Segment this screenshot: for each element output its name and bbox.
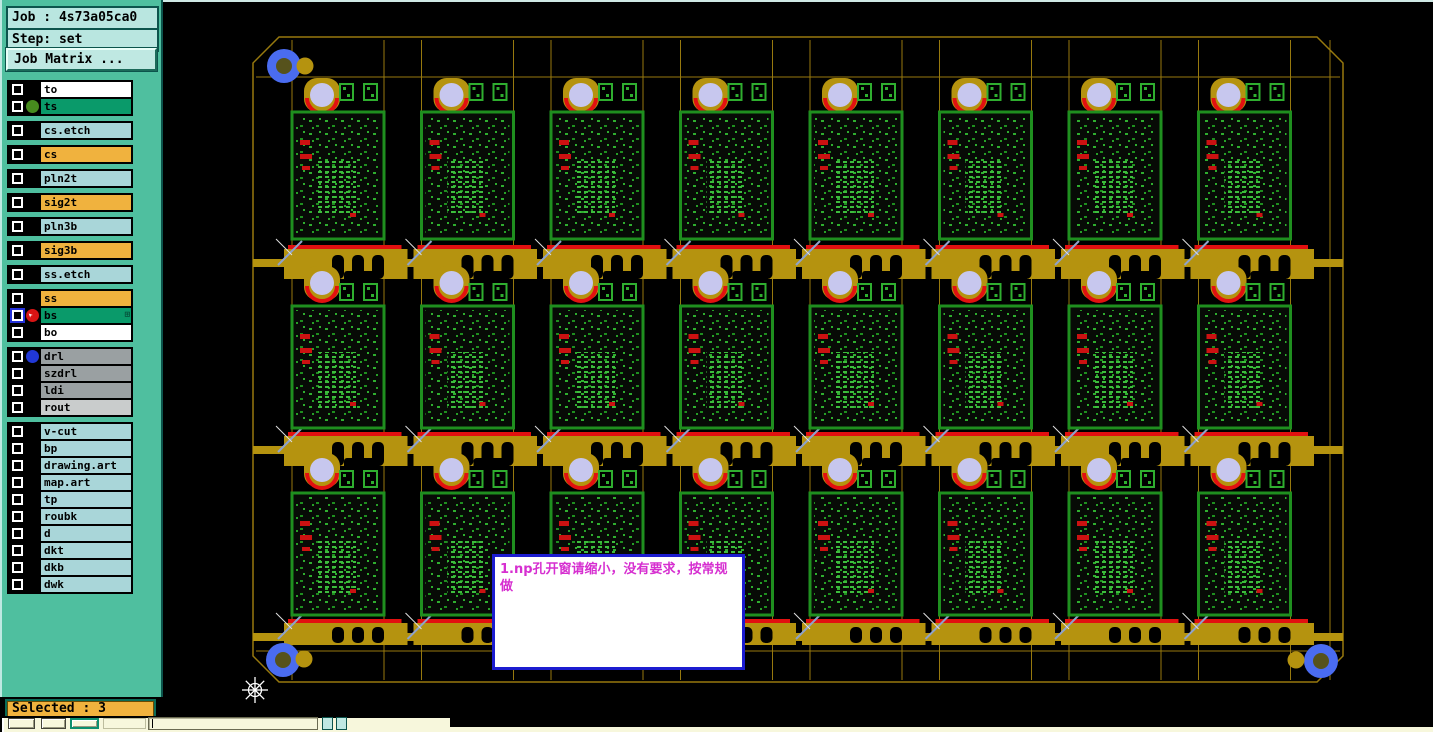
no-icon xyxy=(26,459,39,472)
pcb-board xyxy=(292,306,384,428)
layer-name: ldi xyxy=(41,383,131,398)
no-icon xyxy=(26,527,39,540)
layer-visibility-checkbox[interactable] xyxy=(12,402,23,413)
layer-name: to xyxy=(41,82,131,97)
layer-row-rout[interactable]: rout xyxy=(9,398,131,415)
layer-row-cs[interactable]: cs xyxy=(9,147,131,162)
layer-visibility-checkbox[interactable] xyxy=(12,197,23,208)
toolbar-strip xyxy=(450,727,1433,732)
pcb-board xyxy=(810,493,902,615)
toolbar-button-1[interactable] xyxy=(8,718,35,729)
sidebar: Job : 4s73a05ca0 Step: set Job Matrix ..… xyxy=(0,0,163,697)
cursor-crosshair-icon xyxy=(242,677,268,703)
layer-row-dwk[interactable]: dwk xyxy=(9,575,131,592)
tooling-hole xyxy=(304,78,340,113)
toolbar-button-2[interactable] xyxy=(41,718,66,729)
layer-group: ssbs⊞bo xyxy=(7,289,133,342)
component-footprint xyxy=(858,284,871,300)
no-icon xyxy=(26,244,39,257)
layer-group: cs xyxy=(7,145,133,164)
component-footprint xyxy=(494,84,507,100)
layer-row-to[interactable]: to xyxy=(9,82,131,97)
step-label: Step: set xyxy=(8,28,157,50)
layer-visibility-checkbox[interactable] xyxy=(12,460,23,471)
layer-group: v-cutbpdrawing.artmap.arttproubkddktdkbd… xyxy=(7,422,133,594)
no-icon xyxy=(26,544,39,557)
component-footprint xyxy=(340,471,353,487)
layer-group: ss.etch xyxy=(7,265,133,284)
command-input[interactable] xyxy=(148,717,318,730)
layer-name: pln2t xyxy=(41,171,131,186)
blue-dot-icon xyxy=(26,350,39,363)
pcb-board xyxy=(551,112,643,239)
job-info-box: Job : 4s73a05ca0 Step: set xyxy=(6,6,159,52)
pcb-board xyxy=(940,493,1032,615)
component-footprint xyxy=(1247,471,1260,487)
no-icon xyxy=(26,292,39,305)
no-icon xyxy=(26,578,39,591)
toolbar-mini-button-1[interactable] xyxy=(322,717,333,730)
tooling-hole xyxy=(1211,78,1247,113)
layer-group: pln2t xyxy=(7,169,133,188)
component-footprint xyxy=(1271,284,1284,300)
pcb-board xyxy=(810,306,902,428)
layer-row-szdrl[interactable]: szdrl xyxy=(9,364,131,381)
layer-name: ss xyxy=(41,291,131,306)
layer-name: roubk xyxy=(41,509,131,524)
layer-row-pln3b[interactable]: pln3b xyxy=(9,219,131,234)
layer-visibility-checkbox[interactable] xyxy=(12,293,23,304)
component-footprint xyxy=(599,471,612,487)
layer-name: drawing.art xyxy=(41,458,131,473)
layer-name: bp xyxy=(41,441,131,456)
layer-group: drlszdrlldirout xyxy=(7,347,133,417)
component-footprint xyxy=(988,284,1001,300)
job-matrix-button[interactable]: Job Matrix ... xyxy=(6,48,157,71)
layer-name: pln3b xyxy=(41,219,131,234)
layer-visibility-checkbox[interactable] xyxy=(12,84,23,95)
no-icon xyxy=(26,401,39,414)
layer-group: pln3b xyxy=(7,217,133,236)
layer-visibility-checkbox[interactable] xyxy=(12,101,23,112)
layer-row-dkb[interactable]: dkb xyxy=(9,558,131,575)
pcb-board xyxy=(940,306,1032,428)
no-icon xyxy=(26,561,39,574)
component-footprint xyxy=(470,84,483,100)
annotation-note: 1.np孔开窗请缩小，没有要求，按常规做 xyxy=(492,554,745,670)
fiducial-gold-dot xyxy=(297,58,314,75)
rail-block xyxy=(924,613,1056,645)
component-footprint xyxy=(364,84,377,100)
tooling-hole xyxy=(822,78,858,113)
component-footprint xyxy=(494,284,507,300)
layer-visibility-checkbox[interactable] xyxy=(12,245,23,256)
bottom-toolbar xyxy=(0,716,1433,732)
tooling-hole xyxy=(952,78,988,113)
layer-group: sig3b xyxy=(7,241,133,260)
layer-row-v-cut[interactable]: v-cut xyxy=(9,424,131,439)
tooling-hole xyxy=(434,78,470,113)
pcb-board xyxy=(422,112,514,239)
component-footprint xyxy=(988,84,1001,100)
layer-visibility-checkbox[interactable] xyxy=(12,149,23,160)
layer-visibility-checkbox[interactable] xyxy=(12,579,23,590)
component-footprint xyxy=(988,471,1001,487)
rail-block xyxy=(1053,613,1185,645)
no-icon xyxy=(26,476,39,489)
pcb-board xyxy=(292,112,384,239)
layer-row-sig2t[interactable]: sig2t xyxy=(9,195,131,210)
layer-name: dkb xyxy=(41,560,131,575)
component-footprint xyxy=(858,471,871,487)
layer-visibility-checkbox[interactable] xyxy=(12,385,23,396)
component-footprint xyxy=(882,471,895,487)
layer-row-d[interactable]: d xyxy=(9,524,131,541)
component-footprint xyxy=(364,471,377,487)
component-footprint xyxy=(340,284,353,300)
pcb-board xyxy=(940,112,1032,239)
no-icon xyxy=(26,493,39,506)
pcb-board xyxy=(1199,112,1291,239)
layer-row-pln2t[interactable]: pln2t xyxy=(9,171,131,186)
layer-name: szdrl xyxy=(41,366,131,381)
layer-row-drl[interactable]: drl xyxy=(9,349,131,364)
fiducial-gold-dot xyxy=(1288,652,1305,669)
component-footprint xyxy=(729,84,742,100)
layer-visibility-checkbox[interactable] xyxy=(12,269,23,280)
component-footprint xyxy=(623,471,636,487)
component-footprint xyxy=(753,84,766,100)
component-footprint xyxy=(882,284,895,300)
layer-row-roubk[interactable]: roubk xyxy=(9,507,131,524)
rail-block xyxy=(1183,613,1315,645)
pcb-board xyxy=(292,493,384,615)
layer-row-ldi[interactable]: ldi xyxy=(9,381,131,398)
pcb-panel-drawing xyxy=(163,0,1433,732)
pointer-arrow-icon xyxy=(26,309,39,322)
no-icon xyxy=(26,384,39,397)
component-footprint xyxy=(494,471,507,487)
component-footprint xyxy=(858,84,871,100)
pcb-board xyxy=(1199,493,1291,615)
component-footprint xyxy=(1117,84,1130,100)
component-footprint xyxy=(1247,284,1260,300)
tooling-hole xyxy=(693,78,729,113)
layer-list: totscs.etchcspln2tsig2tpln3bsig3bss.etch… xyxy=(7,80,133,599)
component-footprint xyxy=(470,284,483,300)
pcb-board xyxy=(1199,306,1291,428)
layer-row-bo[interactable]: bo xyxy=(9,323,131,340)
fiducial-bottom-left xyxy=(266,643,300,677)
pcb-board xyxy=(681,112,773,239)
pcb-board xyxy=(810,112,902,239)
rail-block xyxy=(276,613,408,645)
layer-visibility-checkbox[interactable] xyxy=(12,310,23,321)
component-footprint xyxy=(753,284,766,300)
component-footprint xyxy=(729,284,742,300)
tooling-hole xyxy=(563,78,599,113)
layer-name: ts xyxy=(41,99,131,114)
toolbar-button-3[interactable] xyxy=(70,718,99,729)
component-footprint xyxy=(1141,471,1154,487)
component-footprint xyxy=(1271,84,1284,100)
component-footprint xyxy=(599,284,612,300)
layer-group: tots xyxy=(7,80,133,116)
job-label: Job : 4s73a05ca0 xyxy=(8,8,157,28)
layer-name: cs xyxy=(41,147,131,162)
component-footprint xyxy=(1012,471,1025,487)
layer-row-cs.etch[interactable]: cs.etch xyxy=(9,123,131,138)
tooling-hole xyxy=(1081,78,1117,113)
component-footprint xyxy=(623,84,636,100)
layer-visibility-checkbox[interactable] xyxy=(12,368,23,379)
layer-name: bs⊞ xyxy=(41,308,131,323)
component-footprint xyxy=(599,84,612,100)
fiducial-gold-dot xyxy=(296,651,313,668)
no-icon xyxy=(26,148,39,161)
no-icon xyxy=(26,326,39,339)
layer-name: tp xyxy=(41,492,131,507)
component-footprint xyxy=(729,471,742,487)
layer-row-bp[interactable]: bp xyxy=(9,439,131,456)
layer-row-ss[interactable]: ss xyxy=(9,291,131,306)
layer-visibility-checkbox[interactable] xyxy=(12,351,23,362)
fiducial-top-left xyxy=(267,49,301,83)
component-footprint xyxy=(1012,284,1025,300)
layer-visibility-checkbox[interactable] xyxy=(12,477,23,488)
layer-visibility-checkbox[interactable] xyxy=(12,528,23,539)
layer-name: rout xyxy=(41,400,131,415)
fiducial-bottom-right xyxy=(1304,644,1338,678)
layer-visibility-checkbox[interactable] xyxy=(12,443,23,454)
toolbar-button-4[interactable] xyxy=(103,718,146,729)
panel-outline xyxy=(253,37,1343,682)
layer-row-ts[interactable]: ts xyxy=(9,97,131,114)
pcb-board xyxy=(422,306,514,428)
layer-name: sig2t xyxy=(41,195,131,210)
layer-visibility-checkbox[interactable] xyxy=(12,494,23,505)
no-icon xyxy=(26,83,39,96)
layer-visibility-checkbox[interactable] xyxy=(12,221,23,232)
component-footprint xyxy=(1141,284,1154,300)
layer-row-map.art[interactable]: map.art xyxy=(9,473,131,490)
layer-visibility-checkbox[interactable] xyxy=(12,426,23,437)
text-caret xyxy=(152,719,153,728)
component-footprint xyxy=(882,84,895,100)
component-footprint xyxy=(470,471,483,487)
layer-row-sig3b[interactable]: sig3b xyxy=(9,243,131,258)
layer-row-tp[interactable]: tp xyxy=(9,490,131,507)
layer-name: map.art xyxy=(41,475,131,490)
component-footprint xyxy=(1141,84,1154,100)
annotation-text: 1.np孔开窗请缩小，没有要求，按常规做 xyxy=(500,562,728,594)
component-footprint xyxy=(1117,284,1130,300)
component-footprint xyxy=(1247,84,1260,100)
pcb-board xyxy=(1069,493,1161,615)
layer-row-ss.etch[interactable]: ss.etch xyxy=(9,267,131,282)
no-icon xyxy=(26,425,39,438)
component-footprint xyxy=(364,284,377,300)
rail-block xyxy=(794,613,926,645)
layer-row-dkt[interactable]: dkt xyxy=(9,541,131,558)
layer-name: ss.etch xyxy=(41,267,131,282)
layer-name: dwk xyxy=(41,577,131,592)
no-icon xyxy=(26,172,39,185)
no-icon xyxy=(26,442,39,455)
pcb-board xyxy=(1069,112,1161,239)
green-dot-icon xyxy=(26,100,39,113)
layer-name: bo xyxy=(41,325,131,340)
pcb-board xyxy=(681,306,773,428)
pcb-board xyxy=(551,306,643,428)
no-icon xyxy=(26,510,39,523)
no-icon xyxy=(26,196,39,209)
layer-name: sig3b xyxy=(41,243,131,258)
grid-icon: ⊞ xyxy=(125,308,130,323)
layer-visibility-checkbox[interactable] xyxy=(12,327,23,338)
component-footprint xyxy=(623,284,636,300)
toolbar-mini-button-2[interactable] xyxy=(336,717,347,730)
component-footprint xyxy=(1012,84,1025,100)
layer-visibility-checkbox[interactable] xyxy=(12,125,23,136)
pcb-board xyxy=(1069,306,1161,428)
layer-visibility-checkbox[interactable] xyxy=(12,545,23,556)
layer-group: sig2t xyxy=(7,193,133,212)
layer-row-drawing.art[interactable]: drawing.art xyxy=(9,456,131,473)
layer-name: v-cut xyxy=(41,424,131,439)
layer-name: dkt xyxy=(41,543,131,558)
component-footprint xyxy=(753,471,766,487)
no-icon xyxy=(26,220,39,233)
layer-name: cs.etch xyxy=(41,123,131,138)
layer-visibility-checkbox[interactable] xyxy=(12,173,23,184)
layer-row-bs[interactable]: bs⊞ xyxy=(9,306,131,323)
component-footprint xyxy=(340,84,353,100)
layer-visibility-checkbox[interactable] xyxy=(12,562,23,573)
no-icon xyxy=(26,124,39,137)
layer-name: d xyxy=(41,526,131,541)
layer-visibility-checkbox[interactable] xyxy=(12,511,23,522)
component-footprint xyxy=(1117,471,1130,487)
component-footprint xyxy=(1271,471,1284,487)
layer-name: drl xyxy=(41,349,131,364)
no-icon xyxy=(26,268,39,281)
no-icon xyxy=(26,367,39,380)
cam-canvas[interactable] xyxy=(163,0,1433,732)
layer-group: cs.etch xyxy=(7,121,133,140)
